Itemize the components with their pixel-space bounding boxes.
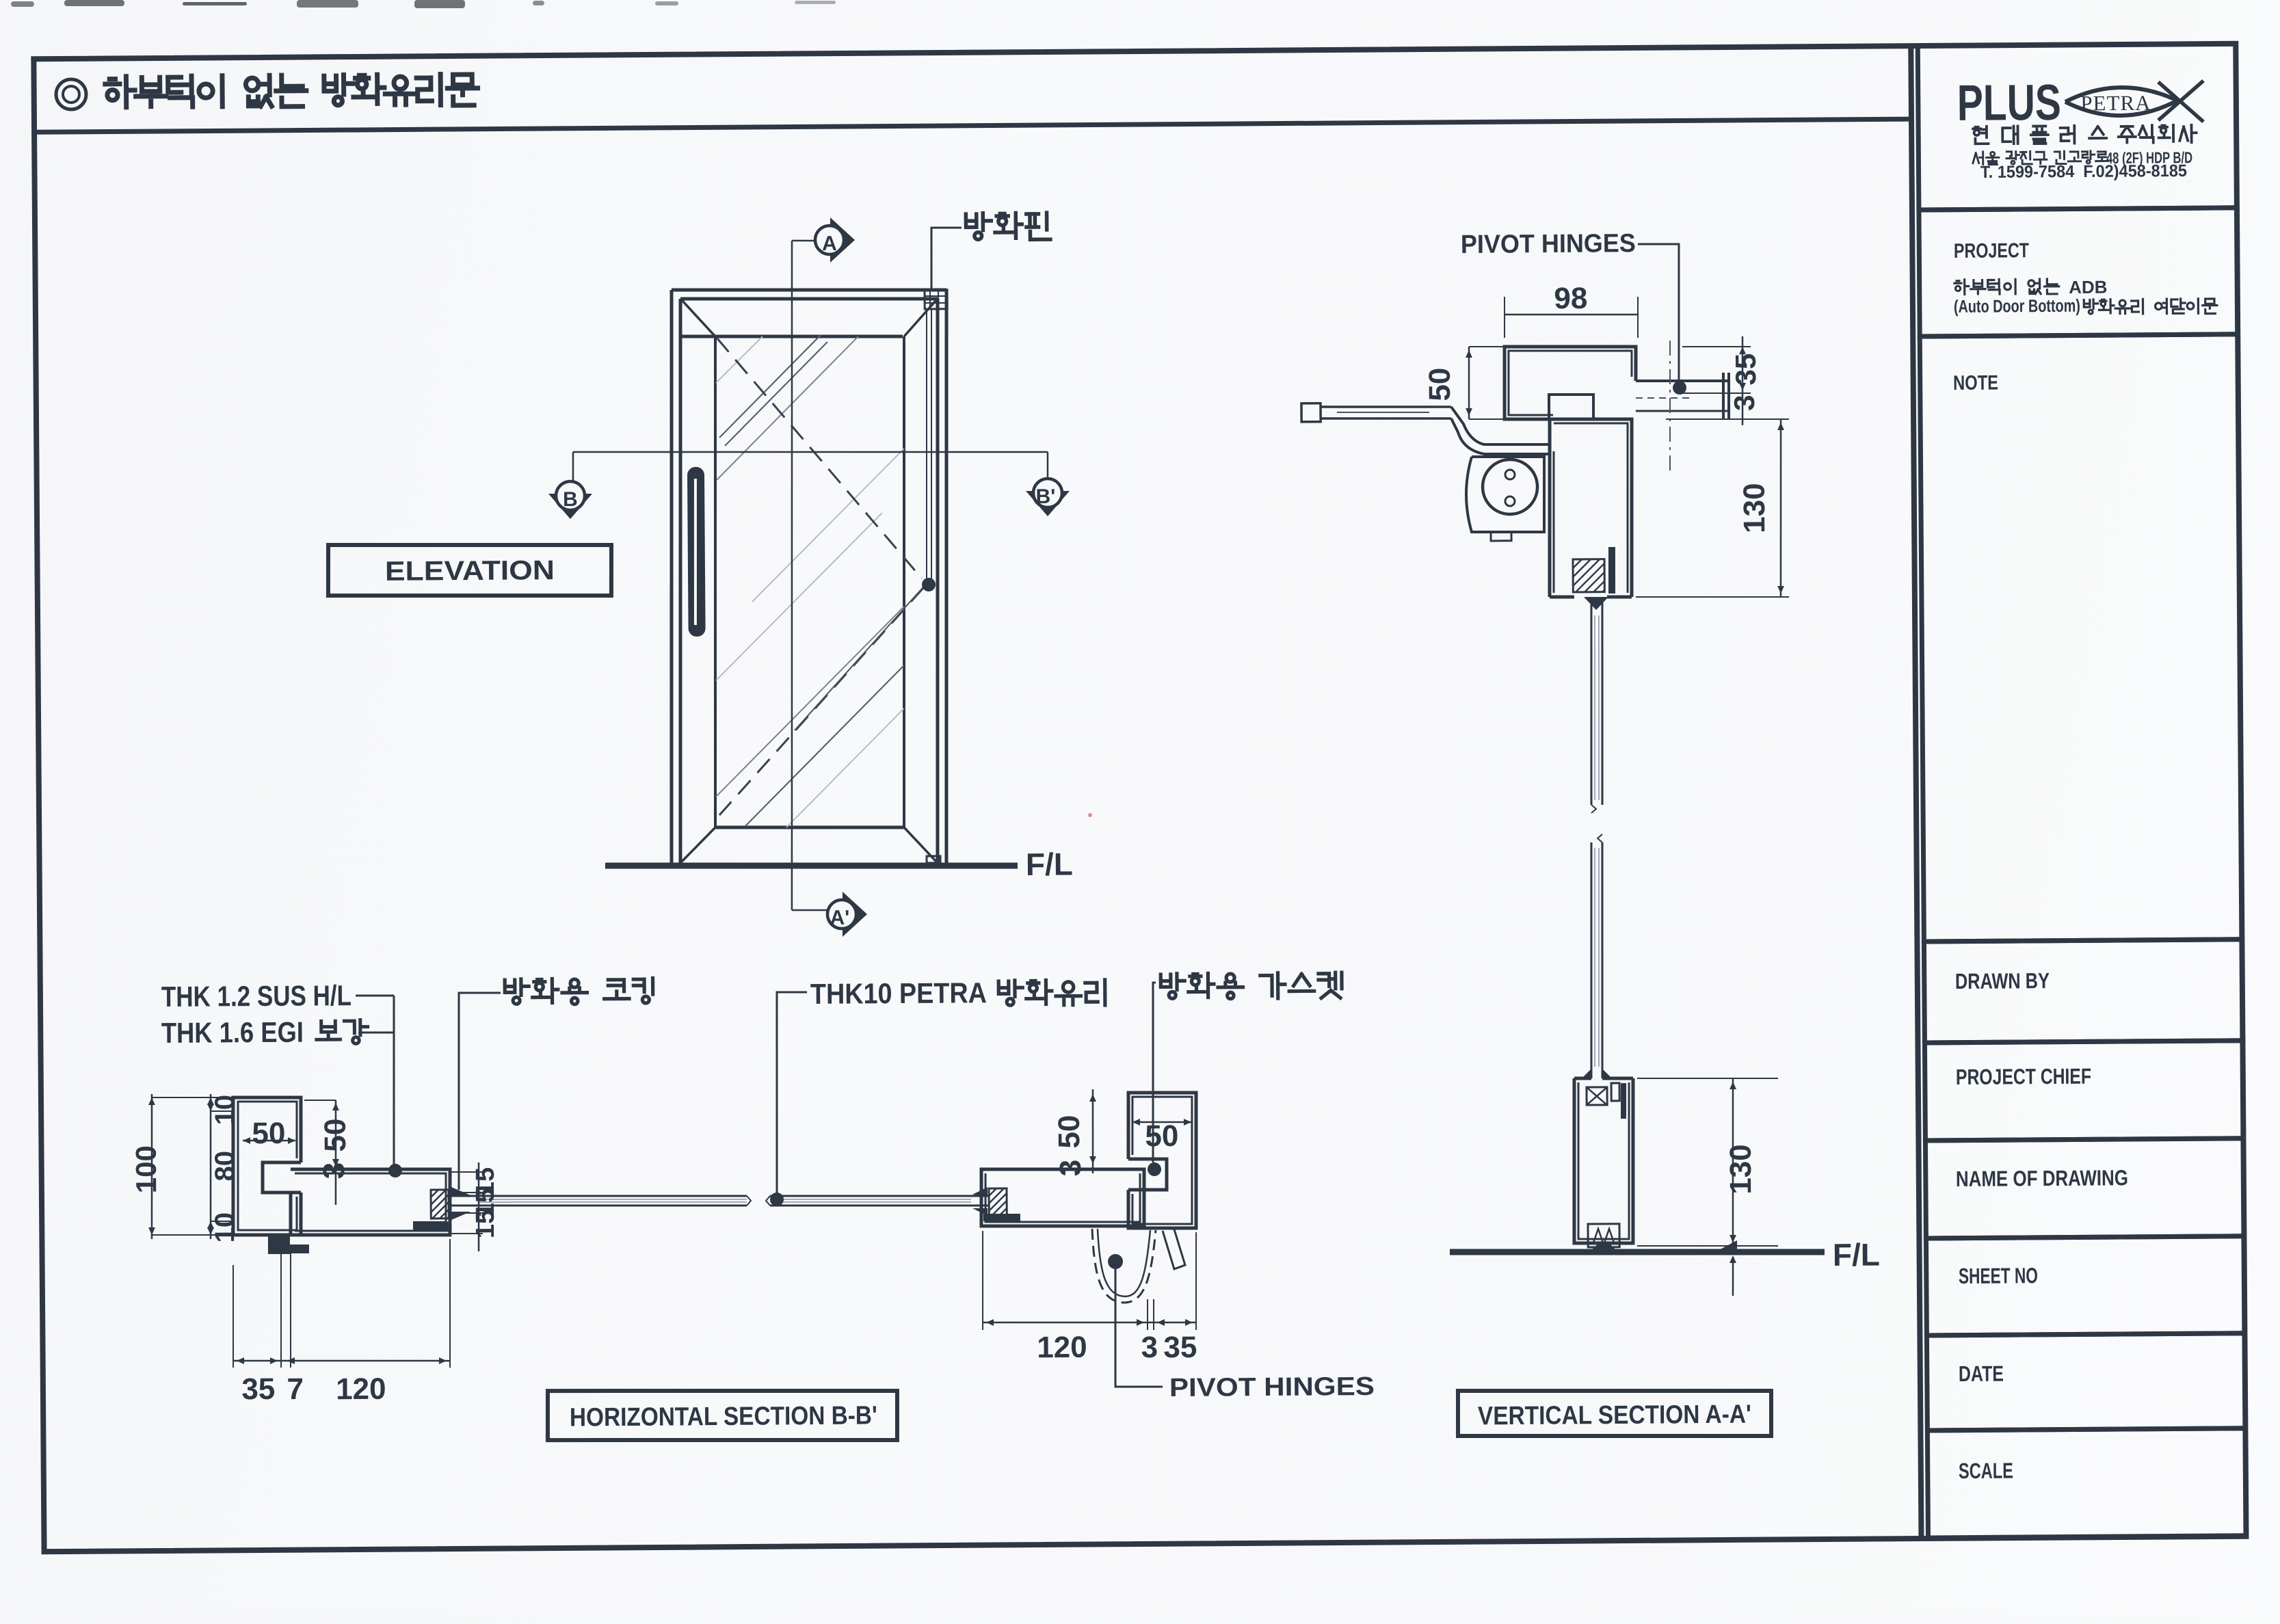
svg-text:98: 98 (1554, 282, 1587, 315)
svg-text:3: 3 (1054, 1160, 1087, 1177)
svg-text:DRAWN BY: DRAWN BY (1955, 968, 2050, 994)
svg-text:T. 1599-7584 F.02)458-8185: T. 1599-7584 F.02)458-8185 (1980, 161, 2187, 182)
svg-text:3: 3 (1728, 395, 1760, 411)
svg-text:50: 50 (1423, 367, 1457, 401)
svg-text:PIVOT HINGES: PIVOT HINGES (1169, 1372, 1375, 1402)
svg-text:120: 120 (336, 1372, 386, 1407)
svg-text:F/L: F/L (1833, 1237, 1880, 1273)
svg-text:PETRA: PETRA (2080, 91, 2151, 116)
svg-text:120: 120 (1037, 1331, 1087, 1365)
svg-text:F/L: F/L (1026, 846, 1073, 881)
svg-text:7: 7 (287, 1372, 304, 1406)
svg-text:DATE: DATE (1959, 1361, 2004, 1386)
svg-text:ELEVATION: ELEVATION (385, 555, 555, 587)
svg-text:(Auto Door Bottom): (Auto Door Bottom) (1954, 295, 2080, 317)
svg-text:35: 35 (241, 1372, 275, 1406)
svg-text:THK 1.2 SUS H/L: THK 1.2 SUS H/L (161, 979, 352, 1013)
svg-text:NOTE: NOTE (1953, 372, 1998, 395)
svg-text:THK 1.6 EGI: THK 1.6 EGI (161, 1016, 304, 1049)
svg-text:A: A (822, 232, 837, 255)
svg-text:NAME OF DRAWING: NAME OF DRAWING (1956, 1165, 2128, 1191)
svg-text:50: 50 (319, 1118, 352, 1152)
svg-text:HORIZONTAL SECTION B-B': HORIZONTAL SECTION B-B' (570, 1401, 877, 1432)
svg-text:15: 15 (471, 1210, 500, 1239)
svg-text:A': A' (830, 907, 849, 929)
svg-text:PROJECT: PROJECT (1954, 239, 2029, 263)
svg-text:PIVOT HINGES: PIVOT HINGES (1461, 229, 1636, 259)
svg-text:SCALE: SCALE (1959, 1459, 2013, 1484)
svg-text:35: 35 (1163, 1331, 1197, 1364)
svg-text:50: 50 (1145, 1119, 1178, 1153)
svg-text:10: 10 (210, 1212, 240, 1243)
svg-text:ADB: ADB (2069, 277, 2108, 297)
svg-text:35: 35 (1729, 354, 1762, 386)
svg-text:80: 80 (210, 1151, 240, 1182)
svg-text:50: 50 (252, 1117, 285, 1150)
svg-text:B: B (563, 488, 578, 511)
svg-text:B': B' (1035, 485, 1055, 508)
svg-text:3: 3 (1141, 1331, 1158, 1364)
svg-text:50: 50 (1052, 1115, 1086, 1148)
svg-text:THK10 PETRA: THK10 PETRA (810, 976, 987, 1010)
svg-text:PROJECT CHIEF: PROJECT CHIEF (1956, 1064, 2091, 1089)
svg-text:PLUS: PLUS (1957, 74, 2062, 131)
svg-text:10: 10 (210, 1095, 240, 1126)
svg-text:130: 130 (1738, 483, 1772, 533)
svg-text:3: 3 (317, 1162, 351, 1180)
svg-text:SHEET NO: SHEET NO (1959, 1263, 2038, 1288)
svg-text:VERTICAL SECTION A-A': VERTICAL SECTION A-A' (1478, 1400, 1751, 1431)
svg-text:130: 130 (1724, 1144, 1758, 1195)
svg-text:100: 100 (130, 1145, 162, 1193)
